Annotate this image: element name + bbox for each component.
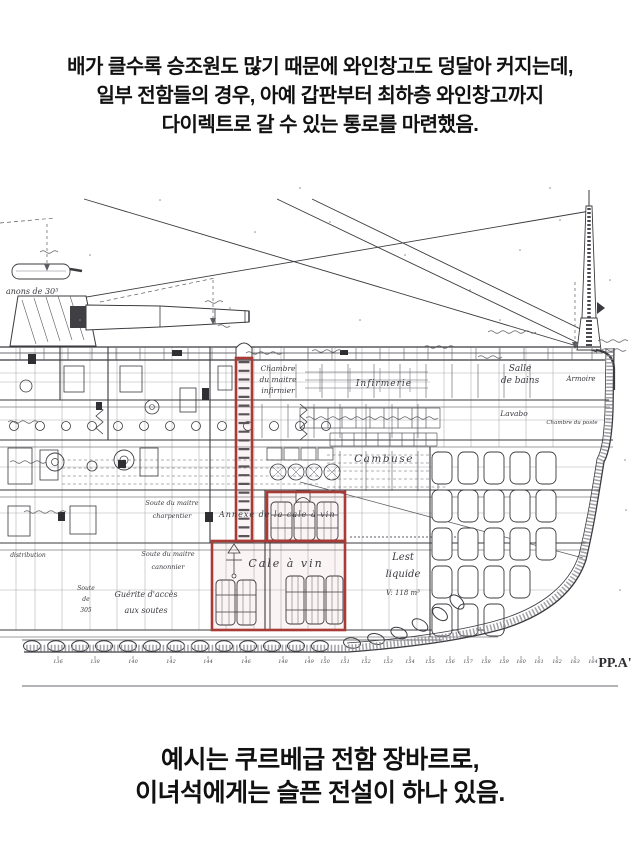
frame-number: 151 [340, 659, 350, 665]
mast-flag [597, 302, 605, 314]
blueprint-label: Guérite d'accès [114, 590, 177, 599]
porthole-row [10, 422, 331, 431]
ship-blueprint: anons de 30⁵Chambredu maitreinfirmierInf… [0, 160, 640, 690]
frame-number: 155 [425, 659, 435, 665]
blueprint-label: du maitre [259, 375, 297, 384]
frame-number: 160 [516, 659, 526, 665]
blueprint-label: Salle [509, 364, 532, 374]
blueprint-label: Armoire [566, 375, 596, 383]
frame-number: 140 [128, 659, 138, 665]
blueprint-label: distribution [10, 552, 46, 559]
blueprint-labels: anons de 30⁵Chambredu maitreinfirmierInf… [6, 287, 598, 615]
blueprint-label: Soute du maitre [145, 499, 198, 507]
blueprint-label: Cambuse [354, 453, 414, 465]
meme-page: 배가 클수록 승조원도 많기 때문에 와인창고도 덩달아 커지는데, 일부 전함… [0, 0, 640, 851]
blueprint-label: Lest [391, 552, 415, 563]
frame-number: 148 [278, 659, 288, 665]
top-caption: 배가 클수록 승조원도 많기 때문에 와인창고도 덩달아 커지는데, 일부 전함… [0, 53, 640, 140]
blueprint-label: Cale à vin [248, 557, 323, 570]
blueprint-label: Annexe de la cale à vin [218, 510, 336, 519]
frame-number: 136 [53, 659, 63, 665]
frame-number: 157 [463, 659, 473, 665]
plate-reference: PP.A' [598, 656, 631, 671]
frame-number: 158 [481, 659, 491, 665]
frame-number: 163 [570, 659, 580, 665]
frame-number: 164 [588, 659, 598, 665]
bottom-caption-line-2: 이녀석에게는 슬픈 전설이 하나 있음. [0, 777, 640, 810]
frame-number: 153 [383, 659, 393, 665]
frame-number: 159 [499, 659, 509, 665]
blueprint-label: Chambre [261, 364, 297, 373]
blueprint-label: Infirmerie [355, 379, 412, 389]
frame-number: 144 [203, 659, 213, 665]
frame-number: 146 [241, 659, 251, 665]
blueprint-label: de bains [501, 376, 540, 386]
frame-number: 138 [90, 659, 100, 665]
blueprint-label: aux soutes [124, 606, 167, 615]
blueprint-label: charpentier [153, 512, 193, 520]
frame-number: 152 [361, 659, 371, 665]
frame-number: 162 [552, 659, 562, 665]
blueprint-label: 305 [80, 607, 92, 614]
blueprint-label: liquide [386, 569, 421, 580]
frame-number: 149 [304, 659, 314, 665]
top-caption-line-1: 배가 클수록 승조원도 많기 때문에 와인창고도 덩달아 커지는데, [0, 53, 640, 82]
frame-number: 161 [534, 659, 544, 665]
frame-number-scale: 1361381401421441461481491501511521531541… [53, 656, 598, 665]
blueprint-label: canonnier [151, 563, 185, 571]
wine-passage-highlights [212, 358, 345, 630]
cell-grid [432, 452, 556, 636]
bottom-caption: 예시는 쿠르베급 전함 장바르로, 이녀석에게는 슬픈 전설이 하나 있음. [0, 744, 640, 810]
blueprint-label: infirmier [261, 386, 295, 395]
top-caption-line-3: 다이렉트로 갈 수 있는 통로를 마련했음. [0, 111, 640, 140]
crates [267, 448, 333, 460]
frame-number: 142 [166, 659, 176, 665]
blueprint-label: Chambre du poste [546, 420, 598, 426]
top-caption-line-2: 일부 전함들의 경우, 아예 갑판부터 최하층 와인창고까지 [0, 82, 640, 111]
frame-number: 156 [445, 659, 455, 665]
frame-number: 150 [320, 659, 330, 665]
bottom-caption-line-1: 예시는 쿠르베급 전함 장바르로, [0, 744, 640, 777]
blueprint-label: anons de 30⁵ [6, 287, 59, 296]
shaft-dome-hatch [236, 343, 252, 357]
cask-ends [270, 464, 340, 480]
blueprint-label: de [82, 596, 90, 603]
blueprint-label: Soute du maitre [141, 550, 194, 558]
wine-cellar-box [212, 541, 345, 630]
frame-number: 154 [405, 659, 415, 665]
blueprint-label: Lavabo [499, 409, 528, 418]
blueprint-label: V: 118 m³ [386, 589, 420, 597]
blueprint-label: Soute [77, 585, 95, 592]
